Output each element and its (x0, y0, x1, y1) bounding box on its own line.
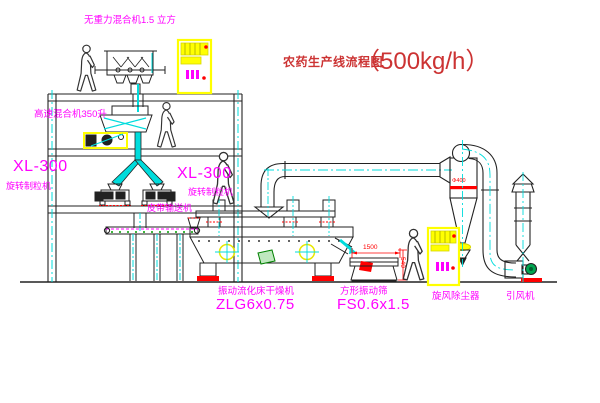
person-figure (77, 45, 96, 91)
cabinet-indicator-icon (186, 70, 199, 79)
label-gravity-free-mixer: 无重力混合机1.5 立方 (84, 16, 176, 26)
label-high-speed-mixer: 高速混合机350升 (34, 110, 107, 120)
label-granulator-right-name: 旋转制粒机 (188, 188, 233, 197)
label-cyclone: 旋风除尘器 (432, 292, 480, 302)
label-granulator-left-model: XL-300 (13, 159, 68, 175)
mixer-drop-pipe (133, 84, 143, 112)
process-flow-diagram: 农药生产线流程图 （500kg/h） 无重力混合机1.5 立方 高速混合机350… (0, 0, 600, 403)
diagram-title-capacity: （500kg/h） (356, 50, 489, 74)
fluid-bed-dryer (190, 196, 353, 281)
granulator-discharge-duct (134, 213, 146, 231)
label-fan: 引风机 (506, 292, 535, 302)
dim-screen-height: 540 (399, 257, 406, 268)
gravity-free-mixer (95, 51, 165, 94)
label-granulator-left-name: 旋转制粒机 (6, 182, 51, 191)
label-dryer-model: ZLG6x0.75 (216, 297, 295, 312)
dryer-nameplate (258, 250, 275, 264)
dim-cyclone-diameter: Φ400 (452, 179, 466, 185)
induced-draft-fan (505, 261, 542, 282)
dim-screen-length: 1500 (363, 245, 377, 252)
person-figure (403, 229, 424, 280)
person-figure (157, 103, 175, 147)
label-belt-conveyor: 皮带输送机 (147, 204, 192, 213)
dryer-exhaust-duct (255, 161, 452, 218)
cabinet-indicator-icon (436, 262, 449, 271)
belt-conveyor (104, 218, 200, 281)
control-cabinet-ground (428, 228, 459, 285)
granulator-feed-chute (112, 132, 163, 186)
rotary-granulator-left (95, 184, 131, 206)
cyclone-outlet-pipe (462, 145, 516, 278)
conveyor-legs (130, 234, 183, 281)
control-cabinet-roof (178, 40, 211, 93)
label-granulator-right-model: XL-300 (177, 166, 232, 182)
label-screen-model: FS0.6x1.5 (337, 297, 410, 312)
